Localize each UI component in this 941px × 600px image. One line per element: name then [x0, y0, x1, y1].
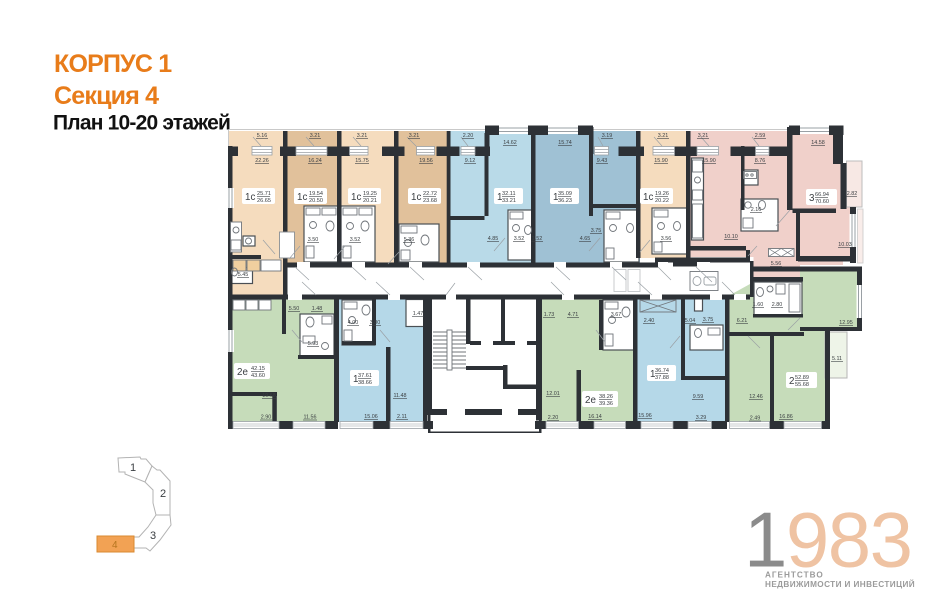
svg-text:3.52: 3.52	[350, 237, 361, 243]
svg-text:3.19: 3.19	[602, 133, 613, 139]
svg-text:4.00: 4.00	[348, 320, 359, 326]
svg-text:3.52: 3.52	[514, 236, 525, 242]
svg-text:35.09: 35.09	[558, 191, 572, 197]
svg-text:5.11: 5.11	[832, 356, 842, 362]
svg-text:4.85: 4.85	[488, 236, 499, 242]
svg-text:2е: 2е	[237, 367, 248, 378]
svg-text:16.86: 16.86	[779, 414, 793, 420]
svg-text:КОРПУС 1: КОРПУС 1	[54, 50, 172, 78]
svg-text:36.23: 36.23	[558, 198, 572, 204]
svg-text:План 10-20 этажей: План 10-20 этажей	[53, 112, 230, 135]
svg-text:9.12: 9.12	[465, 158, 476, 164]
svg-text:9.43: 9.43	[597, 158, 608, 164]
svg-text:3.50: 3.50	[308, 237, 319, 243]
svg-text:2.40: 2.40	[644, 318, 655, 324]
svg-text:15.90: 15.90	[654, 158, 668, 164]
svg-text:6.21: 6.21	[737, 318, 748, 324]
svg-text:2: 2	[160, 488, 166, 500]
svg-text:1с: 1с	[643, 192, 653, 203]
svg-text:70.60: 70.60	[815, 199, 829, 205]
svg-text:3.29: 3.29	[696, 415, 707, 421]
svg-text:8.76: 8.76	[755, 158, 766, 164]
svg-text:3.21: 3.21	[409, 133, 420, 139]
svg-text:2.59: 2.59	[755, 133, 766, 139]
svg-text:1: 1	[130, 462, 136, 474]
svg-text:23.68: 23.68	[423, 198, 437, 204]
svg-text:11.48: 11.48	[393, 393, 406, 399]
svg-text:15.06: 15.06	[364, 414, 378, 420]
svg-text:37.88: 37.88	[655, 375, 669, 381]
svg-text:2е: 2е	[585, 395, 596, 406]
svg-text:14.62: 14.62	[503, 140, 517, 146]
svg-text:36.74: 36.74	[655, 368, 669, 374]
svg-text:55.68: 55.68	[795, 382, 809, 388]
svg-text:12.95: 12.95	[839, 320, 853, 326]
svg-text:4.71: 4.71	[568, 312, 579, 318]
svg-text:43.60: 43.60	[251, 373, 265, 379]
svg-text:1.47: 1.47	[413, 311, 424, 317]
svg-text:19.25: 19.25	[363, 191, 377, 197]
svg-text:19.68: 19.68	[262, 393, 276, 399]
svg-text:5.93: 5.93	[308, 341, 319, 347]
svg-text:3.67: 3.67	[611, 312, 622, 318]
svg-text:10.10: 10.10	[724, 234, 738, 240]
svg-text:12.46: 12.46	[749, 394, 763, 400]
svg-text:Секция 4: Секция 4	[54, 82, 159, 110]
svg-text:15.75: 15.75	[355, 158, 369, 164]
svg-text:37.61: 37.61	[358, 373, 372, 379]
svg-text:1с: 1с	[245, 192, 255, 203]
svg-text:2.16: 2.16	[751, 207, 762, 213]
svg-text:66.94: 66.94	[815, 192, 829, 198]
svg-text:АГЕНТСТВО: АГЕНТСТВО	[765, 571, 824, 580]
svg-text:5.04: 5.04	[685, 318, 696, 324]
svg-text:20.50: 20.50	[309, 198, 323, 204]
svg-text:39.36: 39.36	[599, 401, 613, 407]
svg-text:3.21: 3.21	[698, 133, 709, 139]
svg-text:2.90: 2.90	[261, 415, 272, 421]
svg-text:10.03: 10.03	[838, 242, 852, 248]
svg-text:5.45: 5.45	[238, 272, 249, 278]
svg-text:16.24: 16.24	[308, 158, 322, 164]
svg-text:25.71: 25.71	[257, 191, 271, 197]
svg-text:2.11: 2.11	[397, 414, 407, 420]
svg-text:2.82: 2.82	[847, 191, 858, 197]
svg-text:15.90: 15.90	[702, 158, 716, 164]
svg-text:1.73: 1.73	[544, 312, 555, 318]
svg-text:5.50: 5.50	[289, 306, 300, 312]
svg-text:4.65: 4.65	[580, 236, 591, 242]
svg-text:1с: 1с	[411, 192, 421, 203]
svg-text:2.49: 2.49	[750, 416, 761, 422]
svg-text:12.01: 12.01	[546, 391, 560, 397]
svg-text:19.26: 19.26	[655, 191, 669, 197]
svg-text:15.74: 15.74	[558, 140, 572, 146]
svg-text:3.56: 3.56	[661, 236, 672, 242]
svg-text:38.26: 38.26	[599, 394, 613, 400]
svg-text:1с: 1с	[351, 192, 361, 203]
svg-text:22.72: 22.72	[423, 191, 437, 197]
svg-text:20.21: 20.21	[363, 198, 377, 204]
svg-text:5.56: 5.56	[771, 261, 782, 267]
svg-text:1.52: 1.52	[532, 236, 543, 242]
svg-text:3.21: 3.21	[658, 133, 669, 139]
svg-text:2: 2	[789, 376, 794, 387]
svg-text:4: 4	[112, 540, 118, 551]
svg-text:2.20: 2.20	[463, 133, 474, 139]
svg-text:11.56: 11.56	[303, 415, 316, 421]
svg-text:5.16: 5.16	[257, 133, 268, 139]
svg-text:2.20: 2.20	[548, 415, 559, 421]
svg-text:19.56: 19.56	[419, 158, 433, 164]
svg-text:32.11: 32.11	[502, 191, 516, 197]
svg-text:26.65: 26.65	[257, 198, 271, 204]
svg-text:16.14: 16.14	[588, 414, 602, 420]
svg-text:НЕДВИЖИМОСТИ И ИНВЕСТИЦИЙ: НЕДВИЖИМОСТИ И ИНВЕСТИЦИЙ	[765, 578, 915, 589]
svg-text:1с: 1с	[297, 192, 307, 203]
svg-text:3.80: 3.80	[370, 320, 381, 326]
svg-text:2.80: 2.80	[772, 302, 783, 308]
svg-text:15.96: 15.96	[638, 413, 652, 419]
svg-text:42.15: 42.15	[251, 366, 265, 372]
svg-text:52.89: 52.89	[795, 375, 809, 381]
svg-text:33.21: 33.21	[502, 198, 516, 204]
svg-text:20.22: 20.22	[655, 198, 669, 204]
svg-text:14.58: 14.58	[811, 140, 825, 146]
svg-text:38.66: 38.66	[358, 380, 372, 386]
svg-text:9.59: 9.59	[693, 394, 704, 400]
svg-text:19.54: 19.54	[309, 191, 323, 197]
svg-text:3.21: 3.21	[310, 133, 321, 139]
svg-text:3.75: 3.75	[591, 228, 602, 234]
svg-text:1.48: 1.48	[312, 306, 323, 312]
svg-text:3.21: 3.21	[357, 133, 368, 139]
svg-text:3: 3	[150, 530, 156, 542]
svg-text:5.36: 5.36	[404, 237, 415, 243]
svg-text:1.60: 1.60	[753, 302, 764, 308]
svg-text:3.75: 3.75	[703, 317, 714, 323]
svg-text:22.26: 22.26	[255, 158, 269, 164]
